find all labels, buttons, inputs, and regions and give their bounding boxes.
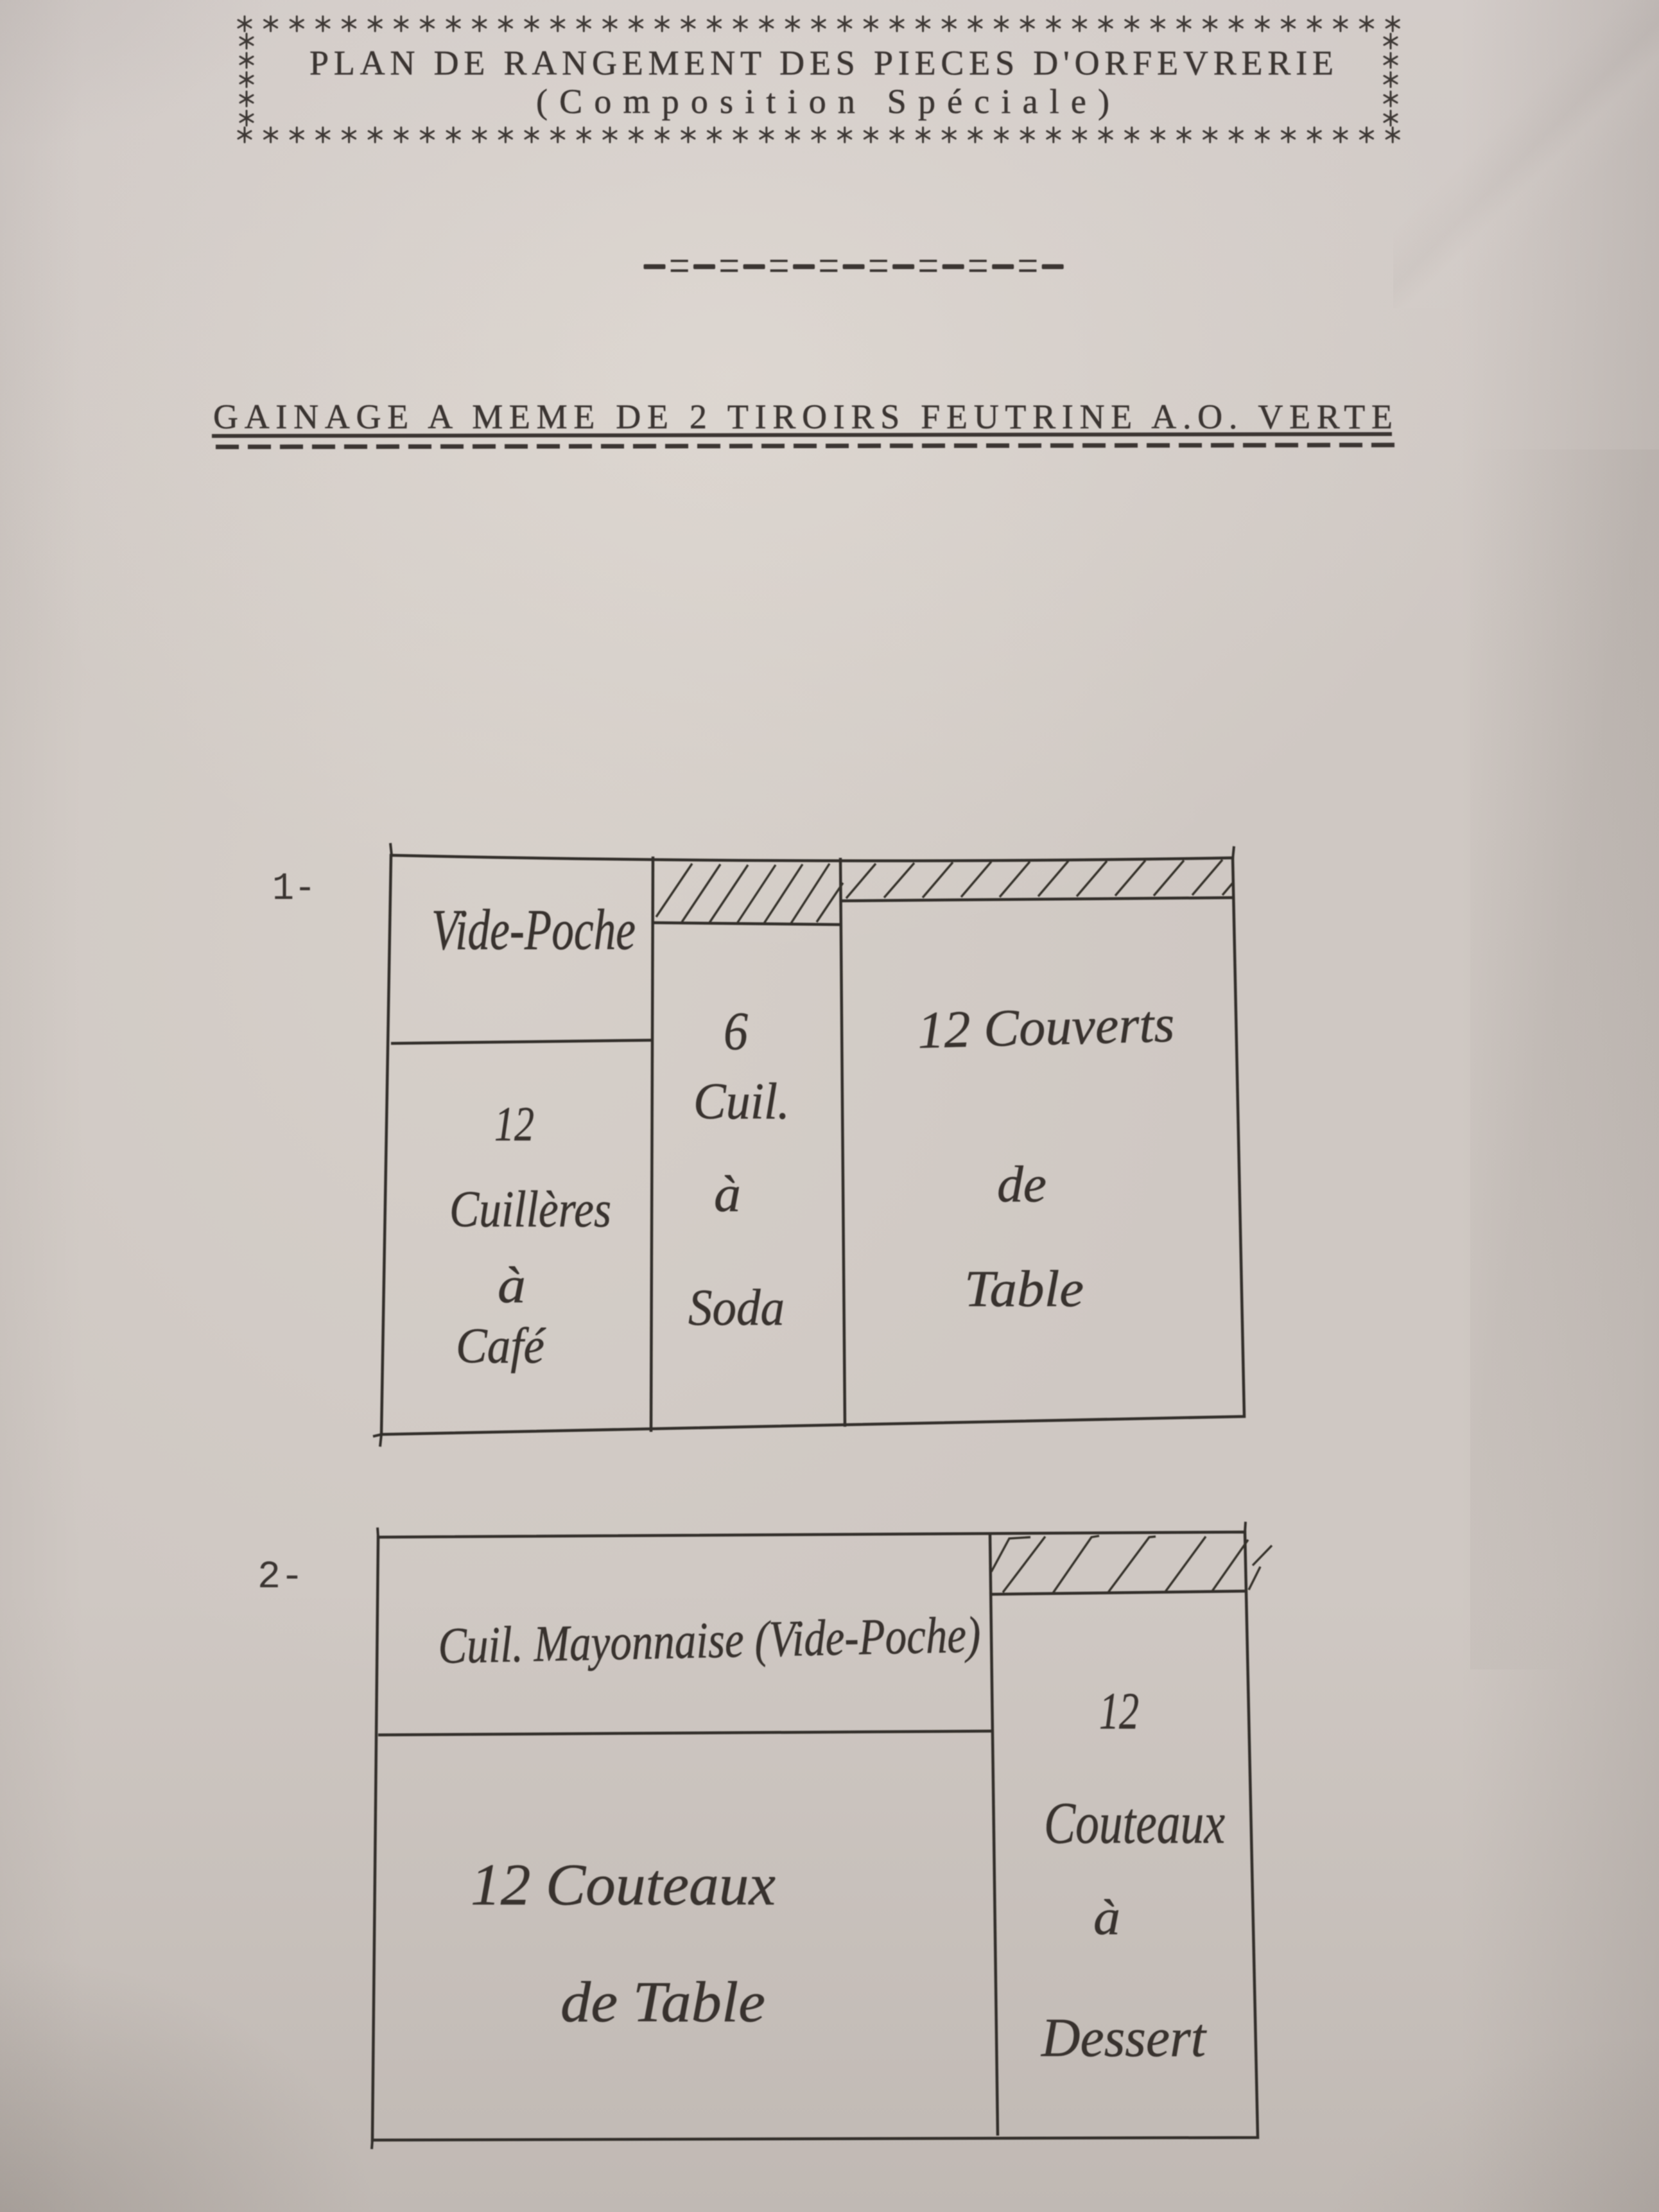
svg-text:Vide-Poche: Vide-Poche — [431, 898, 636, 962]
svg-text:Café: Café — [456, 1318, 546, 1373]
svg-text:2-: 2- — [257, 1556, 304, 1599]
svg-text:de Table: de Table — [560, 1971, 765, 2034]
svg-text:Cuillères: Cuillères — [449, 1181, 611, 1238]
svg-text:Cuil. Mayonnaise (Vide-Poche): Cuil. Mayonnaise (Vide-Poche) — [438, 1607, 982, 1675]
svg-text:Table: Table — [964, 1261, 1084, 1318]
svg-text:1-: 1- — [272, 867, 316, 911]
svg-text:Couteaux: Couteaux — [1044, 1790, 1225, 1856]
svg-text:Soda: Soda — [688, 1280, 785, 1336]
svg-text:(Composition Spéciale): (Composition Spéciale) — [536, 82, 1109, 121]
svg-text:à: à — [714, 1166, 741, 1223]
svg-text:Cuil.: Cuil. — [693, 1074, 790, 1130]
svg-text:12 Couteaux: 12 Couteaux — [471, 1852, 776, 1917]
svg-text:PLAN DE RANGEMENT DES PIECES D: PLAN DE RANGEMENT DES PIECES D'ORFEVRERI… — [309, 44, 1333, 82]
svg-text:à: à — [1093, 1889, 1120, 1945]
svg-text:12 Couverts: 12 Couverts — [917, 995, 1175, 1059]
svg-text:de: de — [997, 1156, 1047, 1213]
svg-text:6: 6 — [724, 1001, 748, 1061]
svg-text:à: à — [498, 1257, 526, 1314]
svg-text:GAINAGE A MEME DE 2 TIROIRS FE: GAINAGE A MEME DE 2 TIROIRS FEUTRINE A.O… — [213, 397, 1393, 436]
svg-text:12: 12 — [494, 1097, 534, 1151]
svg-text:12: 12 — [1099, 1682, 1139, 1740]
svg-text:Dessert: Dessert — [1041, 2007, 1207, 2068]
